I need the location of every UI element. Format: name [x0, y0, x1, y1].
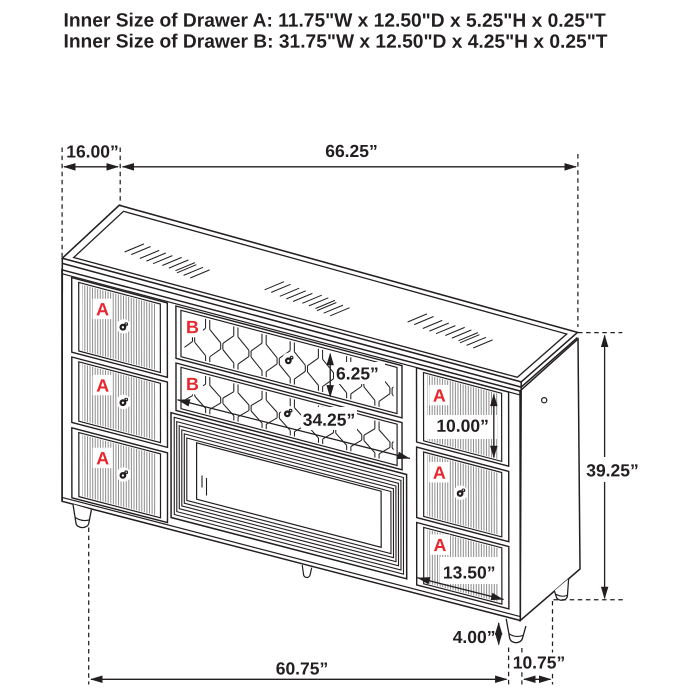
svg-text:16.00”: 16.00”: [66, 141, 119, 161]
svg-text:A: A: [96, 299, 109, 319]
svg-text:39.25”: 39.25”: [586, 460, 639, 480]
svg-text:6.25”: 6.25”: [336, 364, 379, 384]
svg-text:Inner Size of Drawer B: 31.75": Inner Size of Drawer B: 31.75"W x 12.50"…: [63, 32, 607, 53]
svg-text:34.25”: 34.25”: [303, 410, 356, 430]
svg-text:B: B: [186, 374, 199, 394]
svg-text:B: B: [186, 317, 199, 337]
svg-text:A: A: [433, 463, 446, 483]
svg-text:66.25”: 66.25”: [325, 141, 378, 161]
svg-text:10.00”: 10.00”: [436, 416, 489, 436]
svg-text:Inner Size of Drawer A: 11.75": Inner Size of Drawer A: 11.75"W x 12.50"…: [63, 11, 606, 32]
svg-text:A: A: [96, 448, 109, 468]
svg-text:A: A: [433, 386, 446, 406]
svg-text:60.75”: 60.75”: [276, 658, 329, 678]
svg-text:A: A: [96, 376, 109, 396]
svg-text:13.50”: 13.50”: [443, 562, 496, 582]
svg-text:4.00”: 4.00”: [453, 627, 496, 647]
svg-text:A: A: [434, 535, 447, 555]
svg-text:10.75”: 10.75”: [513, 652, 566, 672]
